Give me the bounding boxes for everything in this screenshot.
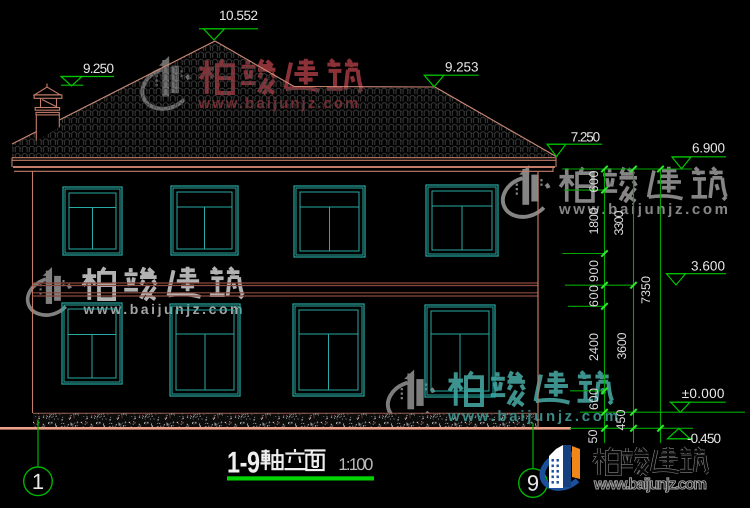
svg-text:1-9: 1-9 (227, 447, 260, 480)
svg-text:900: 900 (587, 260, 601, 282)
svg-text:600: 600 (587, 170, 601, 192)
svg-text:3600: 3600 (615, 332, 629, 359)
svg-text:±0.000: ±0.000 (682, 386, 725, 401)
svg-text:9.253: 9.253 (445, 60, 479, 75)
svg-text:600: 600 (587, 285, 601, 307)
svg-text:1:100: 1:100 (338, 455, 373, 474)
svg-text:3.600: 3.600 (691, 259, 725, 274)
svg-text:450: 450 (614, 409, 628, 430)
svg-text:600: 600 (587, 388, 601, 410)
svg-text:3300: 3300 (612, 210, 626, 235)
svg-text:2400: 2400 (587, 333, 601, 361)
svg-text:www.baijunjz.com: www.baijunjz.com (593, 476, 707, 493)
svg-text:1800: 1800 (587, 207, 601, 234)
svg-text:7.250: 7.250 (571, 130, 601, 145)
svg-text:10.552: 10.552 (219, 8, 258, 23)
svg-text:7350: 7350 (639, 276, 653, 304)
svg-text:9: 9 (527, 471, 539, 496)
svg-text:1: 1 (32, 469, 44, 494)
svg-text:6.900: 6.900 (692, 141, 725, 156)
svg-text:9.250: 9.250 (83, 61, 114, 76)
